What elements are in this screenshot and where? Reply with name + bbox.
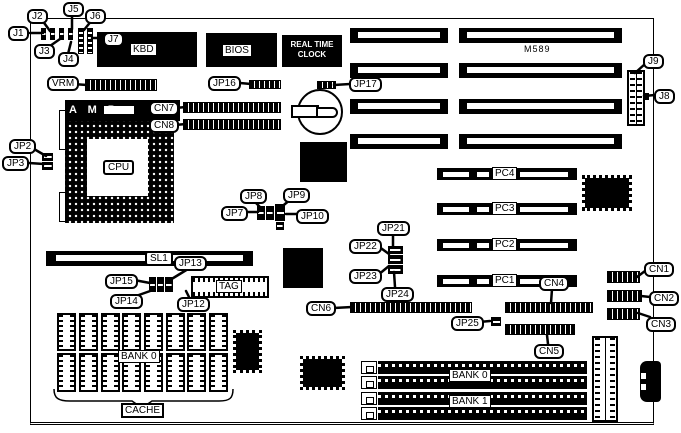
callout-sl1: SL1 [145,251,173,266]
callout-vrm: VRM [47,76,79,91]
callout-cn4: CN4 [539,276,569,291]
callout-cn2: CN2 [649,291,679,306]
callout-j5: J5 [63,2,84,17]
callout-j2: J2 [27,9,48,24]
simm-bank1-label: BANK 1 [449,395,491,408]
callout-cn5: CN5 [534,344,564,359]
callout-cn7: CN7 [149,101,179,116]
motherboard-diagram: M589 PC4 PC3 PC2 PC1 KBD BIOS REAL TIME … [0,0,681,433]
callout-jp9: JP9 [283,188,310,203]
callout-jp17: JP17 [349,77,382,92]
callout-jp12: JP12 [177,297,210,312]
tag-label: TAG [216,280,242,293]
callout-j9: J9 [643,54,664,69]
kbd-label: KBD [130,43,157,56]
callout-jp3: JP3 [2,156,29,171]
callout-j8: J8 [654,89,675,104]
callout-pointer-lines [0,0,681,433]
socket-tab [59,110,66,150]
callout-jp7: JP7 [221,206,248,221]
callout-j7: J7 [103,32,124,47]
callout-jp25: JP25 [451,316,484,331]
callout-jp14: JP14 [110,294,143,309]
callout-j6: J6 [85,9,106,24]
socket-tab [59,192,66,222]
callout-jp10: JP10 [296,209,329,224]
callout-cn1: CN1 [644,262,674,277]
callout-jp23: JP23 [349,269,382,284]
callout-jp13: JP13 [174,256,207,271]
pci-slot-label-pc1: PC1 [492,274,517,287]
cpu-label: CPU [103,160,134,175]
callout-j4: J4 [58,52,79,67]
callout-cn6: CN6 [306,301,336,316]
callout-jp24: JP24 [381,287,414,302]
pci-slot-label-pc4: PC4 [492,167,517,180]
cache-label: CACHE [121,403,164,418]
simm-bank0-label: BANK 0 [449,369,491,382]
callout-j3: J3 [34,44,55,59]
pci-slot-label-pc2: PC2 [492,238,517,251]
callout-cn3: CN3 [646,317,676,332]
callout-cn8: CN8 [149,118,179,133]
callout-jp16: JP16 [208,76,241,91]
callout-jp8: JP8 [240,189,267,204]
pci-slot-label-pc3: PC3 [492,202,517,215]
callout-jp22: JP22 [349,239,382,254]
callout-jp21: JP21 [377,221,410,236]
callout-j1: J1 [8,26,29,41]
callout-jp15: JP15 [105,274,138,289]
bios-label: BIOS [222,44,252,57]
cache-bank-label: BANK 0 [118,350,160,363]
callout-jp2: JP2 [9,139,36,154]
